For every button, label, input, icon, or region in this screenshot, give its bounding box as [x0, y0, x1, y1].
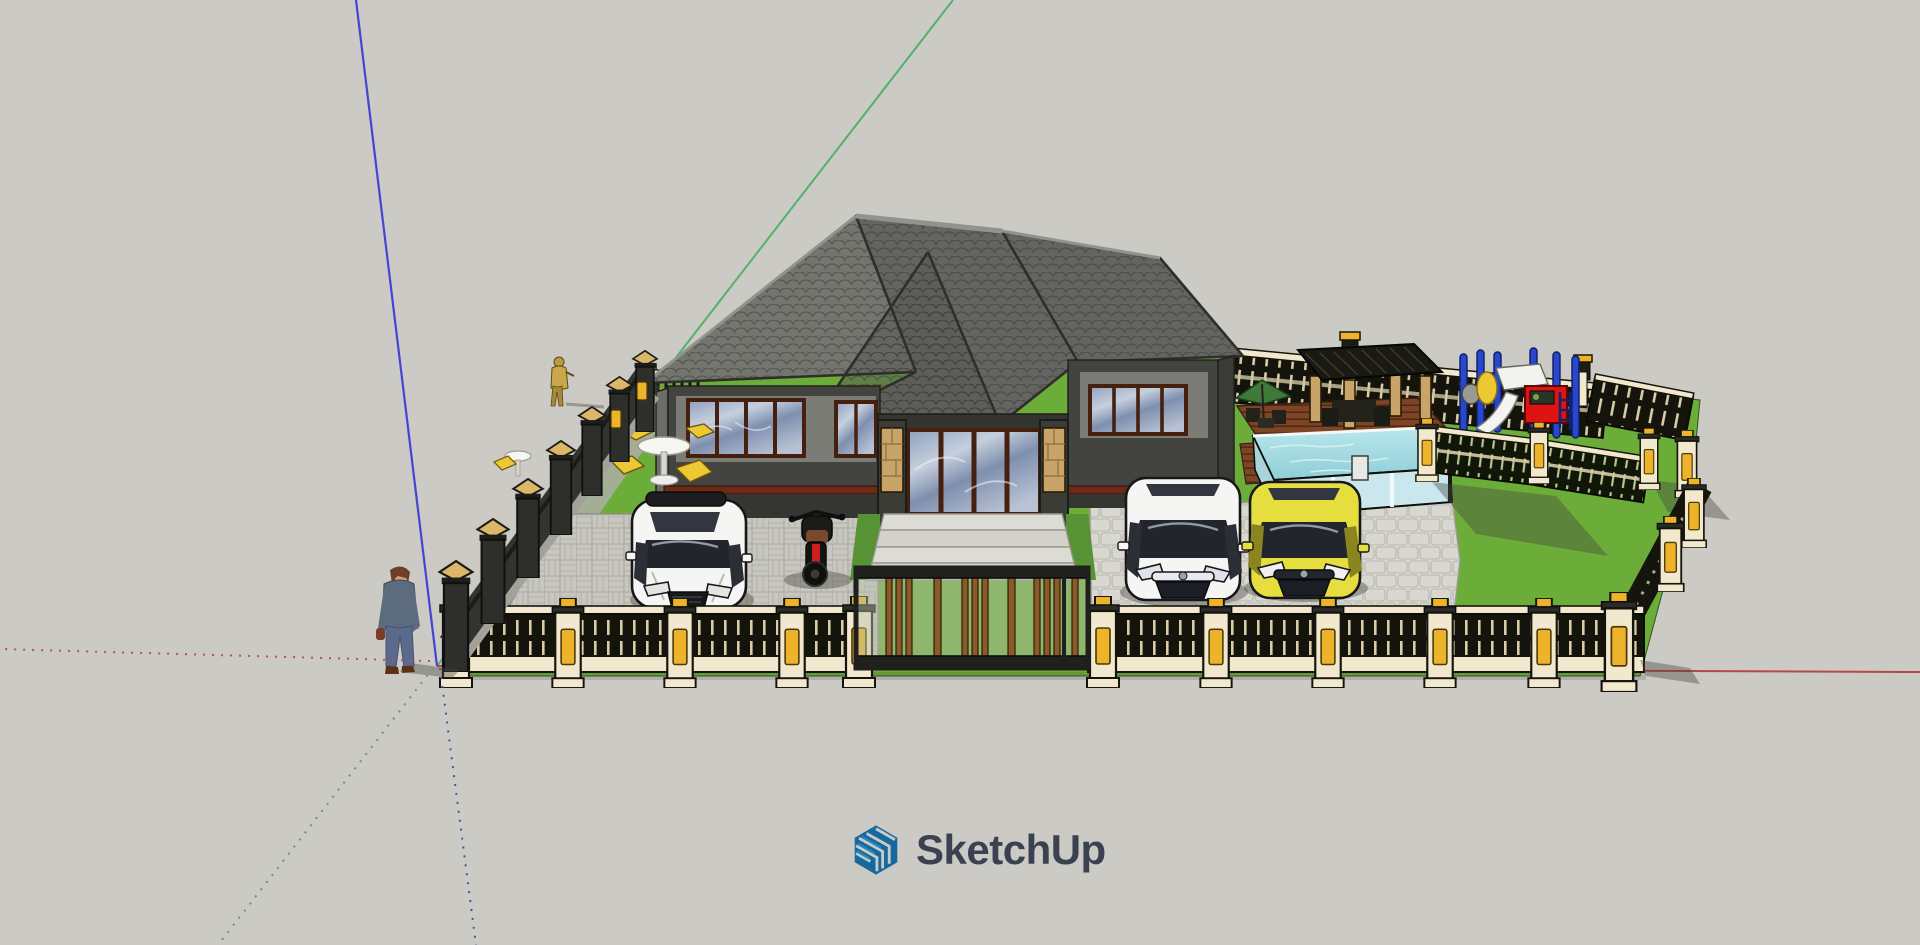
sketchup-viewport[interactable]: SketchUp [0, 0, 1920, 945]
window-wing [1090, 386, 1186, 434]
roof-rack [646, 492, 726, 506]
sketchup-logo-icon [852, 824, 900, 876]
gate-pillar-right [1087, 596, 1119, 688]
fence-pillar [1682, 478, 1706, 548]
fence-pillar [1424, 598, 1455, 688]
blue-axis-line [356, 0, 437, 666]
window-left-2 [836, 402, 876, 456]
drawing-axes-dotted [0, 649, 476, 945]
fence-pillar [776, 598, 807, 688]
fence-pillar-dark [440, 561, 473, 672]
yellow-sedan[interactable] [1242, 482, 1369, 602]
red-axis-dotted [0, 649, 430, 661]
fence-pillar [1657, 516, 1683, 592]
fence-pillar-dark [547, 441, 575, 535]
person-far[interactable] [551, 357, 604, 407]
white-sedan[interactable] [1118, 478, 1249, 607]
fence-pillar-dark [477, 519, 508, 624]
pool-ladder [1352, 456, 1368, 480]
fence-pillar [664, 598, 695, 688]
play-wheel-yellow [1477, 372, 1497, 404]
entrance-porch[interactable] [850, 414, 1096, 580]
fence-pillar [1312, 598, 1343, 688]
fence-pillar [1528, 422, 1550, 484]
held-object [376, 628, 385, 640]
fence-pillar [1638, 428, 1660, 490]
corner-pillar [1602, 592, 1637, 692]
entry-doors[interactable] [908, 430, 1040, 514]
fence-pillar [1416, 418, 1438, 482]
fence-pillar-dark [513, 479, 542, 578]
sketchup-watermark: SketchUp [852, 824, 1106, 876]
model-canvas[interactable] [0, 0, 1920, 945]
fence-pillar-dark [579, 407, 605, 496]
front-gate[interactable] [856, 568, 1088, 668]
green-axis-dotted [218, 668, 433, 945]
fence-pillar [1528, 598, 1559, 688]
watermark-label: SketchUp [916, 826, 1106, 874]
fence-pillar [552, 598, 583, 688]
fence-pillar [1200, 598, 1231, 688]
patio-set-small[interactable] [494, 451, 531, 476]
blue-axis-dotted [440, 668, 476, 945]
white-coupe[interactable] [626, 492, 754, 616]
